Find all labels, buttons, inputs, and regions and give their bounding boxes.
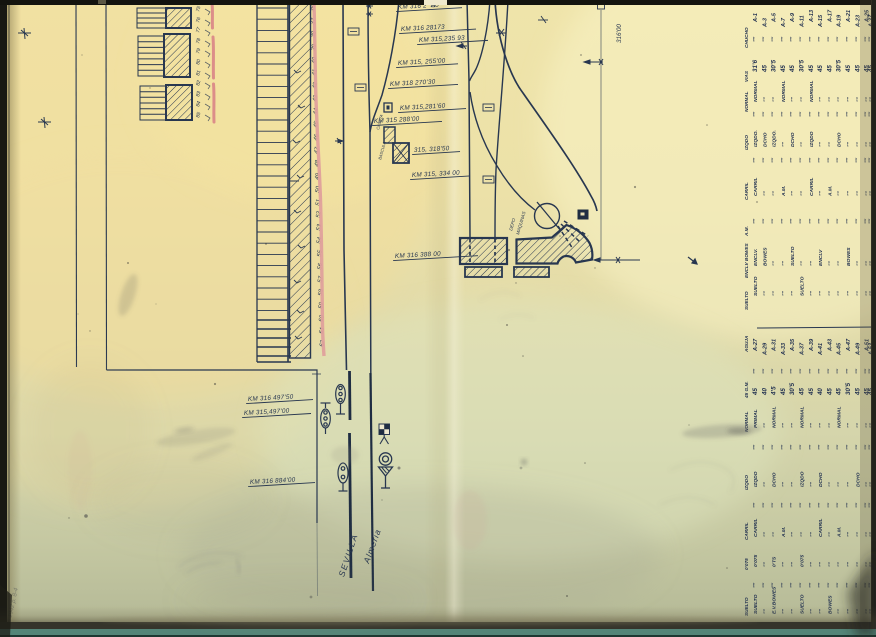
svg-text:””: ”” <box>781 562 787 567</box>
svg-text:A-5: A-5 <box>772 12 778 23</box>
svg-text:””: ”” <box>827 582 833 588</box>
svg-text:””: ”” <box>846 562 852 567</box>
svg-text:””: ”” <box>827 36 833 42</box>
svg-text:””: ”” <box>809 562 815 567</box>
svg-text:””: ”” <box>809 482 815 487</box>
svg-text:””: ”” <box>762 482 768 487</box>
svg-text:A-37: A-37 <box>800 342 806 356</box>
svg-text:””: ”” <box>790 36 796 42</box>
svg-text:””: ”” <box>790 111 796 117</box>
svg-text:””: ”” <box>809 261 815 266</box>
svg-text:””: ”” <box>846 97 852 102</box>
svg-text:DCHO: DCHO <box>837 132 843 147</box>
svg-text:45: 45 <box>780 65 787 73</box>
svg-text:””: ”” <box>772 157 778 163</box>
svg-text:””: ”” <box>762 291 768 296</box>
svg-text:””: ”” <box>800 191 806 196</box>
svg-text:45: 45 <box>808 388 815 396</box>
svg-text:””: ”” <box>762 582 768 588</box>
svg-text:””: ”” <box>762 191 768 196</box>
svg-text:””: ”” <box>809 423 815 428</box>
svg-text:””: ”” <box>800 444 806 450</box>
svg-text:””: ”” <box>781 36 787 42</box>
svg-text:IZQDO.: IZQDO. <box>753 130 759 147</box>
svg-text:””: ”” <box>818 444 824 450</box>
svg-text:””: ”” <box>837 97 843 102</box>
svg-text:””: ”” <box>790 218 796 224</box>
svg-text:30’5: 30’5 <box>789 382 796 395</box>
svg-text:45: 45 <box>780 388 787 396</box>
svg-text:””: ”” <box>753 157 759 163</box>
svg-text:””: ”” <box>846 582 852 588</box>
svg-text:””: ”” <box>818 291 824 296</box>
svg-text:316’00: 316’00 <box>616 24 623 43</box>
svg-text:45: 45 <box>826 65 833 73</box>
svg-text:””: ”” <box>800 36 806 42</box>
svg-text:DCHO: DCHO <box>762 132 768 147</box>
svg-text:A.M.: A.M. <box>781 527 787 538</box>
svg-text:A-13: A-13 <box>809 9 815 23</box>
svg-text:””: ”” <box>753 368 759 374</box>
svg-text:””: ”” <box>837 368 843 374</box>
svg-text:BOWES: BOWES <box>762 247 768 266</box>
svg-text:””: ”” <box>790 532 796 537</box>
svg-text:A-31: A-31 <box>772 339 778 352</box>
svg-text:BOWES: BOWES <box>846 247 852 266</box>
svg-text:””: ”” <box>790 562 796 567</box>
svg-text:””: ”” <box>790 482 796 487</box>
svg-text:IZQDO: IZQDO <box>744 135 749 150</box>
svg-text:A-29: A-29 <box>762 342 768 356</box>
svg-text:30’5: 30’5 <box>836 59 843 72</box>
svg-text:””: ”” <box>827 218 833 224</box>
svg-text:””: ”” <box>837 562 843 567</box>
svg-text:””: ”” <box>781 142 787 147</box>
svg-text:””: ”” <box>781 157 787 163</box>
svg-text:””: ”” <box>781 111 787 117</box>
svg-text:””: ”” <box>837 444 843 450</box>
svg-text:IZQDO.: IZQDO. <box>772 130 778 147</box>
svg-text:A-43: A-43 <box>827 338 833 352</box>
svg-text:””: ”” <box>753 36 759 42</box>
svg-text:AGUJA: AGUJA <box>744 335 749 353</box>
svg-text:A-21: A-21 <box>846 10 852 23</box>
svg-text:40: 40 <box>761 388 768 396</box>
svg-text:45: 45 <box>845 65 852 73</box>
svg-text:””: ”” <box>800 261 806 266</box>
svg-text:NORMAL: NORMAL <box>781 81 787 102</box>
svg-text:””: ”” <box>790 191 796 196</box>
svg-text:””: ”” <box>800 142 806 147</box>
svg-text:””: ”” <box>846 191 852 196</box>
svg-text:””: ”” <box>800 502 806 508</box>
svg-text:””: ”” <box>762 368 768 374</box>
svg-text:””: ”” <box>772 36 778 42</box>
svg-text:””: ”” <box>772 444 778 450</box>
svg-text:””: ”” <box>790 423 796 428</box>
svg-text:””: ”” <box>781 261 787 266</box>
svg-text:””: ”” <box>790 444 796 450</box>
svg-text:IZQDO: IZQDO <box>744 475 749 490</box>
svg-text:””: ”” <box>818 111 824 117</box>
svg-text:””: ”” <box>818 36 824 42</box>
svg-text:””: ”” <box>800 157 806 163</box>
svg-text:””: ”” <box>827 261 833 266</box>
svg-text:””: ”” <box>772 261 778 266</box>
svg-text:45: 45 <box>752 388 759 396</box>
svg-text:””: ”” <box>818 142 824 147</box>
svg-text:A-27: A-27 <box>753 338 759 352</box>
svg-text:VIAS: VIAS <box>744 70 749 82</box>
svg-text:ENCLV.: ENCLV. <box>753 249 759 266</box>
svg-text:””: ”” <box>846 291 852 296</box>
svg-text:””: ”” <box>827 157 833 163</box>
svg-text:DCHO: DCHO <box>790 132 796 147</box>
svg-text:””: ”” <box>762 423 768 428</box>
svg-text:30’5: 30’5 <box>799 59 806 72</box>
svg-text:””: ”” <box>772 291 778 296</box>
svg-text:45: 45 <box>761 65 768 73</box>
svg-text:””: ”” <box>781 502 787 508</box>
svg-text:NORMAL: NORMAL <box>744 91 749 112</box>
svg-text:””: ”” <box>762 562 768 567</box>
svg-text:””: ”” <box>753 502 759 508</box>
svg-text:””: ”” <box>790 502 796 508</box>
svg-text:””: ”” <box>772 111 778 117</box>
svg-text:CARRIL: CARRIL <box>809 178 815 196</box>
svg-text:””: ”” <box>818 368 824 374</box>
svg-text:””: ”” <box>809 291 815 296</box>
svg-text:45 G.M.: 45 G.M. <box>744 381 749 399</box>
svg-text:””: ”” <box>781 423 787 428</box>
svg-text:NORMAL: NORMAL <box>772 407 778 428</box>
svg-text:””: ”” <box>762 111 768 117</box>
svg-text:NORMAL: NORMAL <box>753 81 759 102</box>
svg-text:””: ”” <box>800 97 806 102</box>
svg-text:0’075: 0’075 <box>744 558 749 570</box>
svg-text:A.M.: A.M. <box>837 527 843 538</box>
svg-text:A-47: A-47 <box>846 338 852 352</box>
svg-text:CARRIL: CARRIL <box>753 519 759 537</box>
svg-text:””: ”” <box>827 423 833 428</box>
svg-text:””: ”” <box>846 482 852 487</box>
svg-text:DCHO: DCHO <box>818 472 824 487</box>
svg-text:CARRIL: CARRIL <box>744 522 749 540</box>
svg-text:””: ”” <box>837 582 843 588</box>
svg-text:””: ”” <box>762 97 768 102</box>
svg-text:””: ”” <box>790 157 796 163</box>
svg-text:””: ”” <box>827 444 833 450</box>
svg-text:””: ”” <box>846 142 852 147</box>
svg-text:””: ”” <box>790 97 796 102</box>
svg-text:A-7: A-7 <box>781 17 787 28</box>
svg-text:””: ”” <box>809 444 815 450</box>
svg-text:0’075: 0’075 <box>753 554 759 567</box>
svg-text:A-33: A-33 <box>781 342 787 356</box>
svg-text:””: ”” <box>800 368 806 374</box>
svg-text:45: 45 <box>826 388 833 396</box>
svg-text:45: 45 <box>789 65 796 73</box>
svg-text:””: ”” <box>837 191 843 196</box>
svg-text:””: ”” <box>800 532 806 537</box>
svg-text:””: ”” <box>800 111 806 117</box>
svg-text:””: ”” <box>827 482 833 487</box>
svg-text:A-15: A-15 <box>818 14 824 28</box>
svg-text:SUELTO: SUELTO <box>800 276 806 296</box>
svg-text:””: ”” <box>790 291 796 296</box>
svg-text:””: ”” <box>800 218 806 224</box>
svg-text:””: ”” <box>846 218 852 224</box>
svg-text:””: ”” <box>837 261 843 266</box>
svg-text:””: ”” <box>772 191 778 196</box>
svg-text:CARRIL: CARRIL <box>818 519 824 537</box>
svg-text:””: ”” <box>809 218 815 224</box>
svg-text:A-1: A-1 <box>753 13 759 23</box>
svg-text:40: 40 <box>817 388 824 396</box>
svg-text:””: ”” <box>781 368 787 374</box>
svg-text:””: ”” <box>762 502 768 508</box>
svg-text:””: ”” <box>827 291 833 296</box>
svg-text:””: ”” <box>837 111 843 117</box>
svg-text:””: ”” <box>827 368 833 374</box>
svg-text:””: ”” <box>753 218 759 224</box>
svg-text:””: ”” <box>809 157 815 163</box>
svg-text:””: ”” <box>772 502 778 508</box>
svg-text:0’TS: 0’TS <box>772 556 778 567</box>
svg-text:””: ”” <box>846 444 852 450</box>
svg-text:””: ”” <box>837 482 843 487</box>
svg-text:””: ”” <box>790 582 796 588</box>
svg-text:””: ”” <box>762 36 768 42</box>
svg-text:””: ”” <box>846 111 852 117</box>
svg-text:A.M.: A.M. <box>744 226 749 237</box>
svg-text:””: ”” <box>837 218 843 224</box>
svg-text:””: ”” <box>762 444 768 450</box>
svg-text:A-41: A-41 <box>818 343 824 356</box>
svg-text:CHUCHO: CHUCHO <box>744 27 749 48</box>
svg-text:SUELTO: SUELTO <box>753 276 759 296</box>
svg-text:A.M.: A.M. <box>781 186 787 197</box>
svg-text:””: ”” <box>753 444 759 450</box>
svg-text:””: ”” <box>846 157 852 163</box>
svg-text:””: ”” <box>846 423 852 428</box>
svg-text:””: ”” <box>846 36 852 42</box>
svg-text:””: ”” <box>827 562 833 567</box>
svg-text:””: ”” <box>827 111 833 117</box>
svg-text:””: ”” <box>781 482 787 487</box>
svg-text:DCHO: DCHO <box>772 472 778 487</box>
svg-text:””: ”” <box>837 291 843 296</box>
svg-text:45: 45 <box>808 65 815 73</box>
svg-text:””: ”” <box>781 444 787 450</box>
svg-text:””: ”” <box>818 157 824 163</box>
svg-text:””: ”” <box>772 218 778 224</box>
svg-text:IZQDO: IZQDO <box>753 471 759 487</box>
svg-text:””: ”” <box>809 111 815 117</box>
svg-text:””: ”” <box>772 532 778 537</box>
svg-text:ENCLV BOWES: ENCLV BOWES <box>744 242 749 278</box>
svg-text:A-17: A-17 <box>827 9 833 23</box>
svg-text:””: ”” <box>818 582 824 588</box>
svg-text:CARRIL: CARRIL <box>753 178 759 196</box>
svg-text:””: ”” <box>809 582 815 588</box>
svg-text:A.M.: A.M. <box>827 186 833 197</box>
svg-text:””: ”” <box>818 502 824 508</box>
svg-text:””: ”” <box>846 502 852 508</box>
svg-text:IZQDO: IZQDO <box>809 131 815 147</box>
svg-text:NORMAL: NORMAL <box>837 407 843 428</box>
svg-text:ENCLV: ENCLV <box>818 249 824 266</box>
svg-text:SUELTO: SUELTO <box>744 291 749 310</box>
svg-text:””: ”” <box>818 97 824 102</box>
svg-text:””: ”” <box>837 36 843 42</box>
svg-text:””: ”” <box>809 36 815 42</box>
svg-text:””: ”” <box>827 97 833 102</box>
svg-text:””: ”” <box>818 218 824 224</box>
svg-text:””: ”” <box>781 218 787 224</box>
svg-text:30’5: 30’5 <box>771 59 778 72</box>
svg-text:””: ”” <box>846 532 852 537</box>
svg-text:””: ”” <box>837 502 843 508</box>
svg-text:A-39: A-39 <box>809 338 815 352</box>
svg-text:A-11: A-11 <box>800 15 806 28</box>
svg-text:””: ”” <box>781 291 787 296</box>
svg-text:A-3: A-3 <box>762 17 768 28</box>
svg-text:31’6: 31’6 <box>752 59 759 72</box>
svg-text:””: ”” <box>809 502 815 508</box>
svg-text:SUELTO: SUELTO <box>790 246 796 266</box>
svg-text:””: ”” <box>837 157 843 163</box>
svg-text:””: ”” <box>762 218 768 224</box>
svg-text:45: 45 <box>799 388 806 396</box>
svg-text:NORMAL: NORMAL <box>809 81 815 102</box>
svg-text:””: ”” <box>809 368 815 374</box>
svg-text:A-9: A-9 <box>790 12 796 23</box>
svg-text:45: 45 <box>836 388 843 396</box>
svg-text:CARRIL: CARRIL <box>744 182 749 200</box>
svg-text:””: ”” <box>800 582 806 588</box>
svg-text:””: ”” <box>772 368 778 374</box>
svg-text:””: ”” <box>827 502 833 508</box>
svg-text:””: ”” <box>790 368 796 374</box>
svg-text:A-35: A-35 <box>790 338 796 352</box>
svg-text:””: ”” <box>762 157 768 163</box>
svg-text:0’075: 0’075 <box>800 554 806 567</box>
svg-text:””: ”” <box>846 368 852 374</box>
svg-text:30’5: 30’5 <box>845 382 852 395</box>
svg-text:””: ”” <box>809 532 815 537</box>
svg-text:””: ”” <box>762 532 768 537</box>
svg-text:IZQDO: IZQDO <box>800 471 806 487</box>
svg-text:””: ”” <box>753 111 759 117</box>
svg-text:””: ”” <box>818 562 824 567</box>
svg-text:NORMAL: NORMAL <box>800 407 806 428</box>
svg-text:””: ”” <box>818 423 824 428</box>
svg-text:””: ”” <box>818 191 824 196</box>
svg-text:45: 45 <box>817 65 824 73</box>
svg-text:4’5: 4’5 <box>771 386 778 396</box>
svg-text:A-45: A-45 <box>837 342 843 356</box>
svg-text:A-19: A-19 <box>837 14 843 28</box>
svg-text:””: ”” <box>827 532 833 537</box>
svg-text:””: ”” <box>753 582 759 588</box>
svg-text:””: ”” <box>772 97 778 102</box>
svg-text:””: ”” <box>827 142 833 147</box>
svg-text:””: ”” <box>781 582 787 588</box>
